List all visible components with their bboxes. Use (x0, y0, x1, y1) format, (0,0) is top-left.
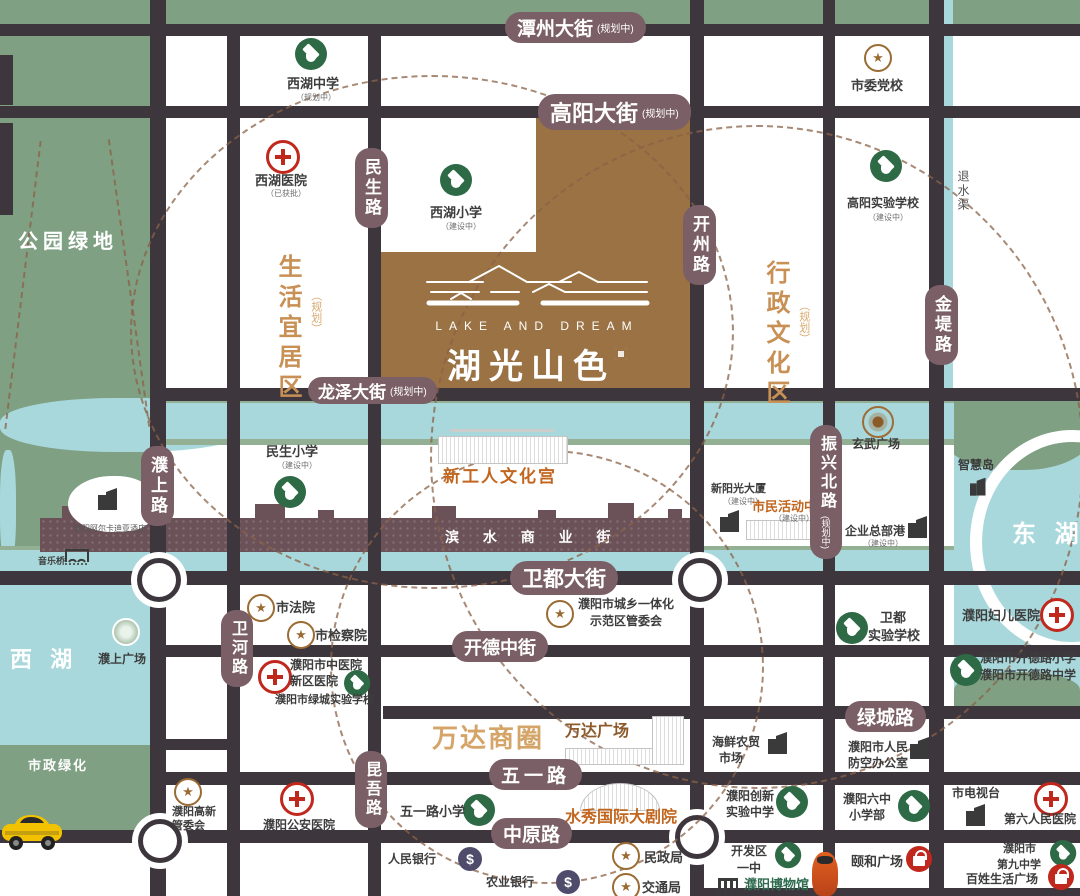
poi-jianchayuan: 市检察院 (315, 628, 367, 644)
road-weihe (227, 24, 240, 896)
poi-chuangxin-line1: 濮阳创新 (726, 789, 774, 804)
poi-shimin-center-sub: （建设中） (774, 513, 814, 524)
pushang-square-icon (112, 618, 140, 646)
shopping-bag-icon (906, 846, 932, 872)
street-label-kaizhou: 开州路 (683, 205, 716, 285)
shopping-bag-icon (1048, 864, 1074, 890)
bank-icon: $ (556, 870, 580, 894)
poi-jiuzhong-line2: 第九中学 (997, 859, 1041, 873)
poi-nongye-bank: 农业银行 (486, 875, 534, 890)
star-icon: ★ (612, 873, 640, 896)
area-label-park: 公园绿地 (18, 230, 118, 255)
hospital-cross-icon (258, 660, 292, 694)
district-label-living-tag: （规划） (308, 290, 322, 334)
poi-xinyangguang: 新阳光大厦 (711, 483, 766, 497)
street-label-weihe: 卫河路 (221, 610, 253, 687)
poi-haixian-line1: 海鲜农贸 (712, 735, 760, 750)
poi-gaoyang-school: 高阳实验学校 (847, 196, 919, 211)
poi-xihu-primary-sub: （建设中） (441, 221, 481, 232)
poi-renfang-line1: 濮阳市人民 (848, 740, 908, 755)
building-icon (720, 508, 739, 532)
poi-liuzhong-line1: 濮阳六中 (843, 792, 891, 807)
poi-yinyueqiao: 音乐桥 (38, 556, 65, 567)
poi-jiaotongju: 交通局 (642, 880, 681, 896)
hospital-cross-icon (266, 140, 300, 174)
skyline-bump (255, 504, 285, 520)
area-label-west-lake: 西 湖 (10, 646, 78, 674)
school-icon (775, 842, 801, 868)
poi-renfang-line2: 防空办公室 (848, 756, 908, 771)
skyline-bump (608, 503, 634, 520)
skyline-bump (432, 506, 456, 519)
road-jindi (929, 0, 944, 896)
street-label-wuyi: 五一路 (489, 759, 582, 790)
school-icon (836, 612, 868, 644)
poi-baixing-plaza: 百姓生活广场 (966, 872, 1038, 887)
poi-jiuzhong-line1: 濮阳市 (1003, 843, 1036, 857)
poi-lvcheng-school: 濮阳市绿城实验学校 (275, 694, 374, 708)
poi-kaidelu-line1: 濮阳市开德路小学 (980, 651, 1076, 666)
road-kaizhou (690, 0, 704, 896)
poi-weidu-school-line1: 卫都 (880, 610, 906, 626)
school-icon (440, 164, 472, 196)
museum-statue (812, 852, 838, 896)
street-label-kunwu: 昆吾路 (355, 751, 387, 828)
poi-museum: 濮阳博物馆 (744, 877, 809, 893)
poi-zhongyi-line1: 濮阳市中医院 (290, 658, 362, 673)
school-icon (950, 654, 982, 686)
poi-xihu-middle-sub: （规划中） (296, 92, 336, 103)
street-label-longze: 龙泽大街(规划中) (308, 377, 437, 404)
poi-binshui-street: 滨 水 商 业 街 (445, 529, 621, 547)
road-stub-h (166, 739, 227, 750)
poi-kaidelu-line2: 濮阳市开德路中学 (980, 668, 1076, 683)
wanda-plaza-base-sketch (565, 748, 663, 765)
area-label-municipal-green: 市政绿化 (28, 758, 88, 774)
star-icon: ★ (287, 621, 315, 649)
poi-shiwei-dangxiao: 市委党校 (851, 78, 903, 94)
poi-wuyilu-primary: 五一路小学 (400, 804, 465, 820)
hospital-cross-icon (280, 782, 314, 816)
poi-xihu-hospital: 西湖医院 (255, 173, 307, 189)
poi-yihe-plaza: 颐和广场 (851, 854, 903, 870)
project-name-en: LAKE AND DREAM (402, 319, 672, 333)
star-icon: ★ (612, 842, 640, 870)
poi-minsheng-primary: 民生小学 (266, 444, 318, 460)
poi-chuangxin-line2: 实验中学 (726, 805, 774, 820)
poi-gaoxin-line1: 濮阳高新 (172, 806, 216, 820)
street-label-weidu: 卫都大街 (510, 561, 618, 595)
poi-hotel: 濮阳阿尔卡迪亚酒店 (74, 524, 146, 534)
project-logo: LAKE AND DREAM 湖光山色 (402, 258, 672, 388)
school-icon (870, 150, 902, 182)
poi-zhihuidao: 智慧岛 (958, 458, 994, 473)
district-label-admin: 行政文化区 (760, 260, 790, 410)
poi-xihu-middle: 西湖中学 (287, 76, 339, 92)
poi-gaoxin-line2: 管委会 (172, 820, 205, 834)
district-label-living: 生活宜居区 (272, 254, 302, 404)
music-bridge-icon (64, 546, 90, 566)
poi-pushang-square: 濮上广场 (98, 652, 146, 667)
poi-xihu-hospital-sub: （已获批） (266, 188, 306, 199)
logo-mountains-art (421, 258, 653, 312)
bank-icon: $ (458, 847, 482, 871)
area-label-wanda-circle: 万达商圈 (432, 722, 544, 755)
project-seal (615, 348, 627, 360)
poi-liuzhong-line2: 小学部 (849, 808, 885, 823)
street-label-zhongyuan: 中原路 (491, 818, 572, 849)
poi-tv-station: 市电视台 (952, 786, 1000, 801)
poi-renmin-bank: 人民银行 (388, 852, 436, 867)
poi-weidu-school-line2: 实验学校 (868, 628, 920, 644)
poi-shifayuan: 市法院 (276, 600, 315, 616)
star-icon: ★ (864, 44, 892, 72)
district-label-admin-tag: （规划） (796, 300, 810, 344)
poi-minzhengju: 民政局 (644, 850, 683, 866)
poi-qiye-port: 企业总部港 (845, 524, 905, 539)
star-icon: ★ (174, 778, 202, 806)
street-label-zhenxing: 振兴北路(规划中) (810, 425, 842, 559)
skyline-bump (668, 509, 682, 519)
museum-icon (718, 878, 738, 896)
real-estate-location-map: 潭州大街(规划中) 高阳大街(规划中) 龙泽大街(规划中) 卫都大街 开德中街 … (0, 0, 1080, 896)
building-icon (768, 730, 787, 754)
road-stub-left2 (0, 123, 13, 215)
building-icon (966, 802, 985, 826)
school-icon (295, 38, 327, 70)
poi-qiye-port-sub: （建设中） (863, 538, 903, 549)
poi-kaifaqu-line2: 一中 (737, 861, 761, 876)
road-stub-left1 (0, 55, 13, 105)
school-icon (274, 476, 306, 508)
poi-guanweihui-line2: 示范区管委会 (590, 614, 662, 629)
building-icon (970, 476, 986, 496)
school-icon (463, 794, 495, 826)
street-label-lvcheng: 绿城路 (845, 701, 926, 732)
area-label-drain: 退水渠 (955, 170, 970, 212)
poi-xuanwu: 玄武广场 (852, 437, 900, 452)
poi-zhongyi-line2: 新区医院 (290, 674, 338, 689)
roundabout (137, 558, 181, 602)
poi-diliu-hospital: 第六人民医院 (1004, 812, 1076, 827)
poi-gongan-hospital: 濮阳公安医院 (263, 818, 335, 833)
street-label-kaide: 开德中街 (452, 631, 548, 662)
project-block-upper (536, 118, 690, 252)
skyline-bump (318, 510, 334, 519)
hospital-cross-icon (1040, 598, 1074, 632)
poi-minsheng-primary-sub: （建设中） (277, 460, 317, 471)
hospital-cross-icon (1034, 782, 1068, 816)
school-icon (898, 790, 930, 822)
street-label-tanzhou: 潭州大街(规划中) (505, 12, 646, 43)
poi-xihu-primary: 西湖小学 (430, 205, 482, 221)
project-name-cn: 湖光山色 (447, 347, 615, 387)
taxi-icon (0, 806, 66, 856)
wenhuagong-sketch (438, 436, 568, 464)
building-icon (910, 735, 929, 759)
shuixiu-dome-sketch (580, 783, 660, 811)
star-icon: ★ (546, 600, 574, 628)
school-icon (776, 786, 808, 818)
area-label-east-lake: 东 湖 (1012, 520, 1080, 550)
street-label-jindi: 金堤路 (925, 285, 958, 365)
wenhuagong-roofline (450, 429, 554, 432)
building-icon (908, 514, 927, 538)
street-label-minsheng: 民生路 (355, 148, 388, 228)
street-label-gaoyang: 高阳大街(规划中) (538, 94, 691, 130)
road-lvcheng (383, 706, 1080, 719)
xuanwu-plaza-icon (862, 406, 894, 438)
school-icon (1050, 840, 1076, 866)
roundabout (678, 558, 722, 602)
poi-wenhuagong: 新工人文化宫 (443, 466, 557, 487)
poi-haixian-line2: 市场 (719, 751, 743, 766)
poi-kaifaqu-line1: 开发区 (731, 844, 767, 859)
poi-gaoyang-school-sub: （建设中） (868, 212, 908, 223)
poi-wanda-plaza: 万达广场 (565, 722, 629, 742)
wanda-plaza-tower-sketch (652, 716, 684, 765)
street-label-pushang: 濮上路 (141, 446, 174, 526)
poi-fuer-hospital: 濮阳妇儿医院 (962, 608, 1040, 624)
school-icon (344, 670, 370, 696)
poi-guanweihui-line1: 濮阳市城乡一体化 (578, 597, 674, 612)
poi-shuixiu: 水秀国际大剧院 (565, 808, 677, 828)
skyline-bump (538, 510, 556, 519)
